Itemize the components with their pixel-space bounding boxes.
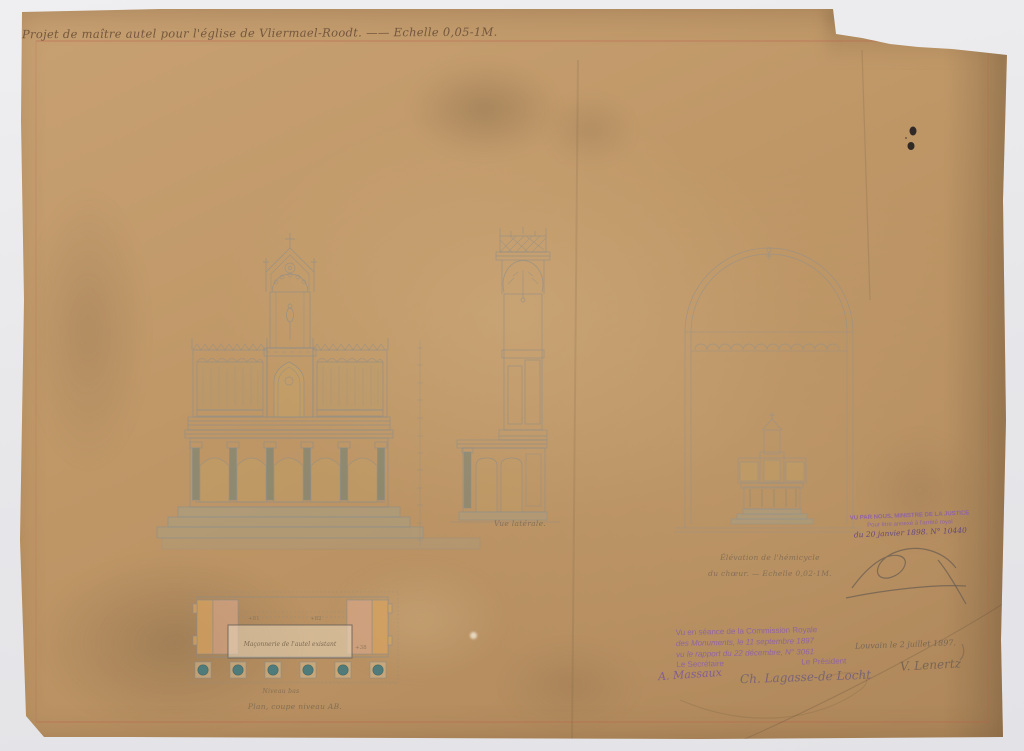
commission-president-label: Le Président xyxy=(801,657,846,669)
exposition-tower xyxy=(263,233,317,348)
cross-finial xyxy=(285,233,295,248)
front-elevation-drawing xyxy=(157,233,480,549)
altar-niches xyxy=(200,458,377,502)
justice-stamp: VU PAR NOUS, MINISTRE DE LA JUSTICE Pour… xyxy=(849,509,970,541)
retable-wing-right xyxy=(313,338,388,417)
retable-wing-left xyxy=(192,338,267,417)
caption-hemicycle-line1: Élévation de l'hémicycle xyxy=(700,553,840,562)
plan-mark: +38 xyxy=(355,645,367,651)
dimension-line xyxy=(417,340,423,546)
commission-stamp: Vu en séance de la Commission Royale des… xyxy=(676,624,875,671)
plan-drawing: +81 +82 +38 Maçonnerie de l'autel exista… xyxy=(188,592,398,683)
tabernacle-centre xyxy=(264,348,316,417)
red-border-frame xyxy=(36,41,988,722)
sheet-title: Projet de maître autel pour l'église de … xyxy=(22,25,498,41)
hemicycle-drawing xyxy=(675,248,862,532)
caption-plan-level: Niveau bas xyxy=(246,688,316,695)
scanned-drawing-page: +81 +82 +38 Maçonnerie de l'autel exista… xyxy=(0,0,1024,751)
plan-masonry-label: Maçonnerie de l'autel existant xyxy=(243,641,337,648)
caption-hemicycle-line2: du chœur. — Echelle 0,02-1M. xyxy=(695,569,845,578)
plan-column-bases xyxy=(195,662,386,678)
tabernacle-door xyxy=(274,362,304,417)
caption-side-view: Vue latérale. xyxy=(470,519,570,528)
plan-orange-end-right xyxy=(372,600,388,654)
plan-orange-end-left xyxy=(197,600,213,654)
aged-paper-sheet: +81 +82 +38 Maçonnerie de l'autel exista… xyxy=(0,0,1024,751)
plan-mark: +82 xyxy=(310,616,322,622)
side-elevation-drawing xyxy=(450,227,560,522)
caption-plan-title: Plan, coupe niveau AB. xyxy=(235,702,355,711)
ink-dots xyxy=(905,127,917,151)
plan-mark: +81 xyxy=(248,616,260,622)
hemicycle-altar xyxy=(731,412,813,524)
